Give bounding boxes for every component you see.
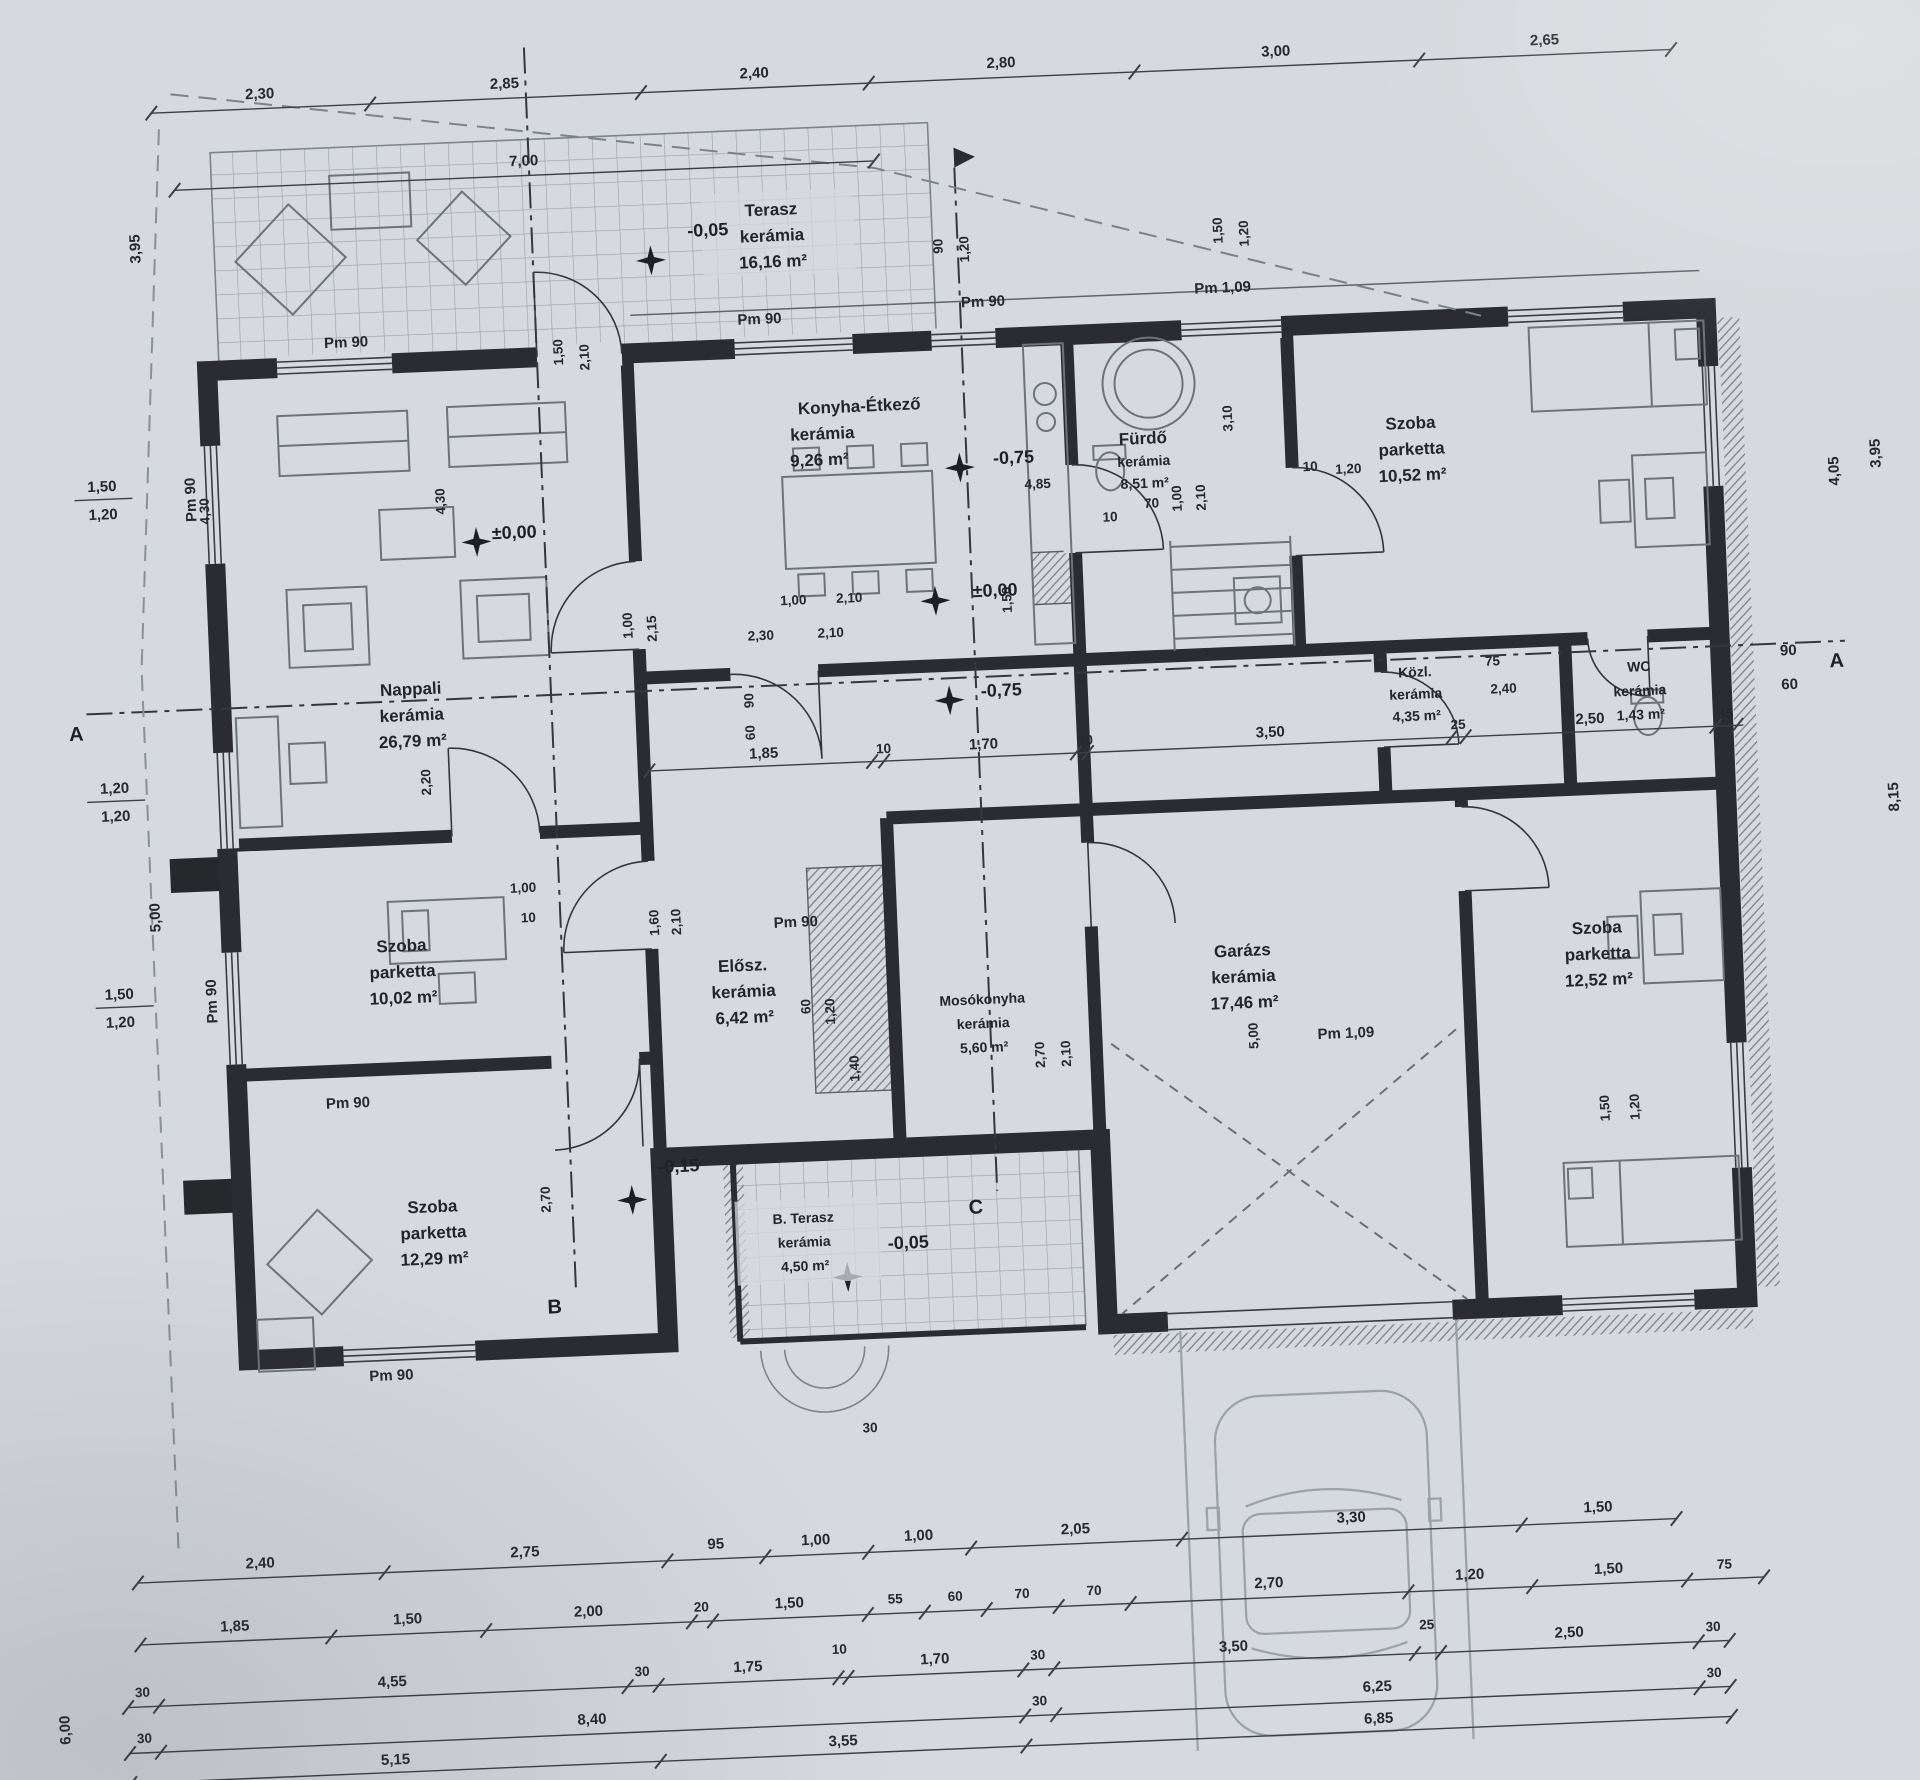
room-finish: kerámia (777, 1233, 831, 1251)
dim-label: 1,20 (100, 780, 130, 798)
dim-label: 1,20 (956, 236, 972, 263)
section-label: B (547, 1296, 562, 1319)
dim-label: 3,95 (126, 234, 144, 264)
dim-label: 6,25 (1362, 1678, 1392, 1696)
dim-label: 2,65 (1530, 31, 1560, 49)
room-finish: kerámia (956, 1014, 1010, 1032)
dim-label: 1,50 (1210, 217, 1226, 244)
dim-label: 3,10 (1220, 405, 1236, 432)
dim-label: 60 (947, 1589, 963, 1605)
lintel-label: Pm 90 (326, 1094, 371, 1113)
dim-label: 2,40 (739, 64, 769, 82)
level-label: -0,05 (887, 1232, 929, 1254)
dim-label: 1,20 (1335, 461, 1362, 477)
dim-label: 8,40 (577, 1711, 607, 1729)
room-area: 4,50 m² (781, 1257, 830, 1275)
dim-label: 2,20 (418, 769, 434, 796)
room-name: WC (1627, 658, 1651, 675)
dim-label: 75 (1485, 653, 1501, 669)
dim-label: 2,30 (747, 628, 774, 644)
dim-label: 4,05 (1825, 456, 1843, 486)
dim-label: 75 (1717, 1556, 1733, 1572)
dim-label: 1,20 (88, 506, 118, 524)
room-finish: kerámia (379, 704, 445, 726)
dim-label: 1,20 (1236, 220, 1252, 247)
floor-plan-photo: Terasz kerámia 16,16 m² Nappali kerámia … (0, 0, 1920, 1780)
dim-label: 2,75 (510, 1543, 540, 1561)
dim-label: 3,55 (828, 1732, 858, 1750)
dim-label: 1,00 (510, 880, 537, 896)
dim-label: 8,15 (1885, 782, 1903, 812)
room-finish: kerámia (1613, 681, 1667, 699)
lintel-label: Pm 1,09 (1194, 278, 1251, 297)
dim-label: 1,50 (104, 986, 134, 1004)
room-name: Szoba (1385, 413, 1436, 434)
dim-label: 30 (135, 1685, 151, 1701)
dim-label: 3,50 (1255, 723, 1285, 741)
dim-label: 30 (862, 1420, 878, 1436)
dim-label: 1,20 (1627, 1093, 1643, 1120)
dim-label: 30 (634, 1664, 650, 1680)
dim-label: 1,00 (904, 1527, 934, 1545)
dim-label: 6,00 (56, 1715, 74, 1745)
dim-label: 6,85 (1364, 1710, 1394, 1728)
room-finish: kerámia (1211, 966, 1277, 988)
dim-label: 60 (1781, 676, 1798, 694)
dim-label: 2,40 (245, 1554, 275, 1572)
dim-label: 10 (1302, 459, 1318, 475)
dim-label: 25 (1419, 1617, 1435, 1633)
lintel-label: Pm 90 (961, 293, 1006, 312)
dim-label: 60 (742, 725, 758, 741)
dim-label: 2,50 (1554, 1624, 1584, 1642)
dim-label: 2,40 (1490, 681, 1517, 697)
dim-label: 1,00 (801, 1531, 831, 1549)
dim-label: 2,70 (538, 1186, 554, 1213)
dim-label: 5,15 (381, 1751, 411, 1769)
room-name: Közl. (1398, 663, 1432, 680)
dim-label: 30 (1030, 1647, 1046, 1663)
room-area: 6,42 m² (715, 1007, 775, 1028)
dim-label: 70 (1144, 495, 1160, 511)
level-label: -0,75 (993, 447, 1035, 469)
dim-label: 30 (137, 1731, 153, 1747)
room-area: 10,52 m² (1378, 464, 1447, 486)
dim-label: 2,70 (1032, 1041, 1048, 1068)
level-label: ±0,00 (972, 579, 1018, 601)
dim-label: 1,50 (774, 1594, 804, 1612)
dim-label: 5,00 (1245, 1022, 1261, 1049)
level-label: -0,75 (980, 679, 1022, 701)
room-area: 16,16 m² (739, 251, 808, 273)
dim-label: 2,85 (489, 75, 519, 93)
dim-label: 2,05 (1061, 1520, 1091, 1538)
dim-label: 2,10 (817, 625, 844, 641)
dim-label: 2,10 (1058, 1040, 1074, 1067)
room-name: Fürdő (1118, 428, 1167, 449)
room-area: 1,43 m² (1616, 705, 1665, 723)
lintel-label: Pm 90 (737, 310, 782, 329)
dim-label: 2,70 (1254, 1574, 1284, 1592)
lintel-label: Pm 1,09 (1317, 1024, 1374, 1043)
dim-label: 3,50 (1219, 1638, 1249, 1656)
dim-label: 3,30 (1336, 1509, 1366, 1527)
room-area: 8,51 m² (1120, 474, 1169, 492)
dim-label: 3,95 (1866, 438, 1884, 468)
dim-label: 30 (1706, 1665, 1722, 1681)
dim-label: 20 (694, 1599, 710, 1615)
room-finish: kerámia (1117, 452, 1171, 470)
section-label: C (968, 1196, 983, 1219)
dim-label: 1,50 (1594, 1560, 1624, 1578)
dim-label: 4,85 (1024, 476, 1051, 492)
dim-label: 3,00 (1261, 42, 1291, 60)
floor-plan-drawing: Terasz kerámia 16,16 m² Nappali kerámia … (0, 0, 1920, 1780)
room-name: Nappali (380, 679, 442, 701)
dim-label: 60 (798, 999, 814, 1015)
level-label: -0,05 (687, 219, 729, 241)
dim-label: 2,10 (836, 590, 863, 606)
room-name: Szoba (376, 935, 427, 956)
dim-label: 10 (831, 1641, 847, 1657)
dim-label: 90 (930, 239, 946, 255)
dim-label: 1,50 (393, 1610, 423, 1628)
dim-label: 1,50 (87, 478, 117, 496)
room-finish: kerámia (740, 225, 806, 247)
dim-label: 10 (876, 741, 892, 757)
dim-label: 1,20 (105, 1014, 135, 1032)
room-area: 5,60 m² (960, 1038, 1009, 1056)
dim-label: 1,50 (550, 339, 566, 366)
dim-label: 90 (1780, 642, 1797, 660)
room-finish: parketta (1564, 943, 1631, 965)
dim-label: 1,70 (920, 1650, 950, 1668)
room-area: 17,46 m² (1210, 992, 1279, 1014)
room-area: 12,52 m² (1565, 969, 1634, 991)
room-name: Garázs (1214, 940, 1271, 961)
dim-label: 1,00 (620, 612, 636, 639)
room-finish: parketta (400, 1222, 467, 1244)
room-name: Terasz (744, 199, 797, 220)
room-area: 12,29 m² (400, 1248, 469, 1270)
dim-label: 2,00 (574, 1603, 604, 1621)
room-area: 4,35 m² (1392, 707, 1441, 725)
room-finish: kerámia (790, 423, 856, 445)
dim-label: 2,30 (245, 85, 275, 103)
dim-label: 10 (1102, 509, 1118, 525)
dim-label: 1,20 (101, 808, 131, 826)
dim-label: 1,75 (733, 1658, 763, 1676)
dim-label: 1,50 (1597, 1095, 1613, 1122)
dim-label: 1,20 (822, 998, 838, 1025)
dim-label: 2,50 (1575, 710, 1605, 728)
dim-label: 70 (1014, 1586, 1030, 1602)
level-label: ±0,00 (491, 521, 537, 543)
stove-icon (1032, 551, 1074, 605)
room-name: Szoba (1571, 917, 1622, 938)
dim-label: 2,10 (576, 344, 592, 371)
dim-label: 1,40 (846, 1055, 862, 1082)
dim-label: 1,70 (969, 735, 999, 753)
dim-label: 1,50 (1583, 1498, 1613, 1516)
room-area: 10,02 m² (369, 987, 438, 1009)
lintel-label: Pm 90 (324, 333, 369, 352)
dim-label: 1,00 (780, 592, 807, 608)
dim-label: 95 (707, 1535, 724, 1553)
room-finish: kerámia (711, 981, 777, 1003)
section-label: A (69, 724, 84, 747)
dim-label: 25 (1450, 717, 1466, 733)
room-area: 9,26 m² (790, 449, 850, 470)
dim-label: 2,15 (644, 615, 660, 642)
level-label: -0,15 (658, 1155, 700, 1177)
dim-label: 1,85 (749, 744, 779, 762)
lintel-label: Pm 90 (182, 477, 201, 522)
dim-label: 10 (521, 910, 537, 926)
dim-label: 1,85 (220, 1617, 250, 1635)
room-finish: parketta (1378, 438, 1445, 460)
lintel-label: Pm 90 (369, 1366, 414, 1385)
dim-label: 2,10 (668, 908, 684, 935)
dim-label: 1,00 (1169, 485, 1185, 512)
room-area: 26,79 m² (378, 730, 447, 752)
dim-label: 7,00 (509, 152, 539, 170)
dim-label: 4,30 (432, 488, 448, 515)
dim-label: 90 (741, 693, 757, 709)
dim-label: 2,10 (1193, 484, 1209, 511)
dim-label: 70 (1086, 1583, 1102, 1599)
dim-label: 4,55 (377, 1673, 407, 1691)
dim-label: 30 (1078, 732, 1094, 748)
lintel-label: Pm 90 (203, 979, 222, 1024)
dim-label: 1,20 (1455, 1566, 1485, 1584)
room-finish: kerámia (1389, 685, 1443, 703)
room-name: Elősz. (718, 955, 768, 976)
dim-label: 30 (1705, 1619, 1721, 1635)
lintel-label: Pm 90 (773, 913, 818, 932)
dim-label: 1,60 (646, 909, 662, 936)
section-label: A (1829, 650, 1844, 673)
dim-label: 5,00 (146, 903, 164, 933)
dim-label: 2,80 (986, 54, 1016, 72)
room-finish: parketta (369, 961, 436, 983)
dim-label: 30 (1032, 1693, 1048, 1709)
dim-label: 55 (887, 1591, 903, 1607)
room-name: B. Terasz (772, 1209, 834, 1228)
room-name: Szoba (407, 1196, 458, 1217)
dim-label: 45 (1718, 705, 1734, 721)
